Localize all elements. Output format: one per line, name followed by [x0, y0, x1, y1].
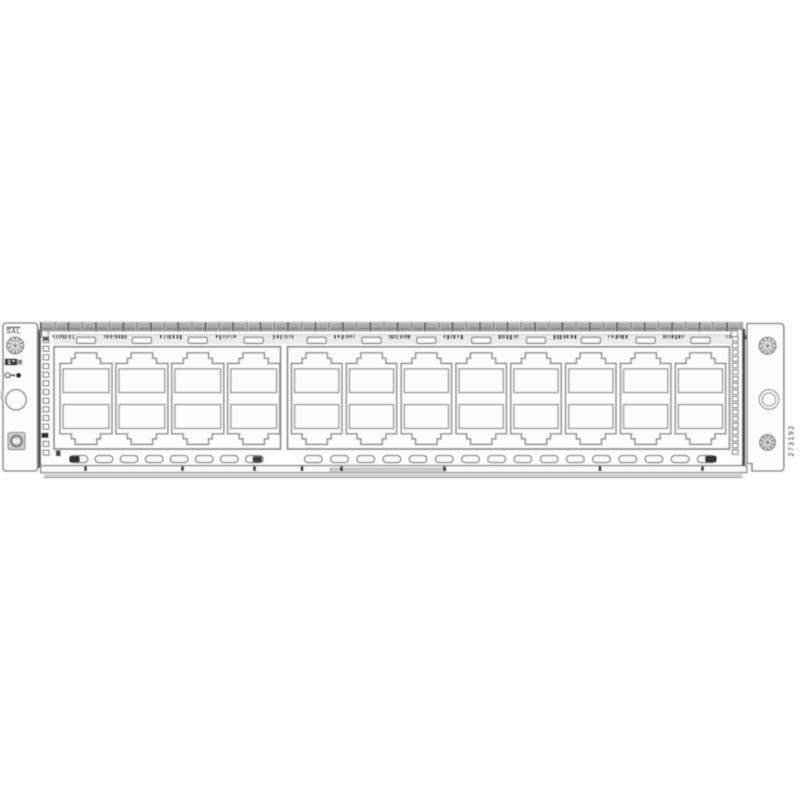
svg-text:SAL: SAL: [6, 329, 21, 336]
svg-text:273192: 273192: [789, 424, 796, 456]
